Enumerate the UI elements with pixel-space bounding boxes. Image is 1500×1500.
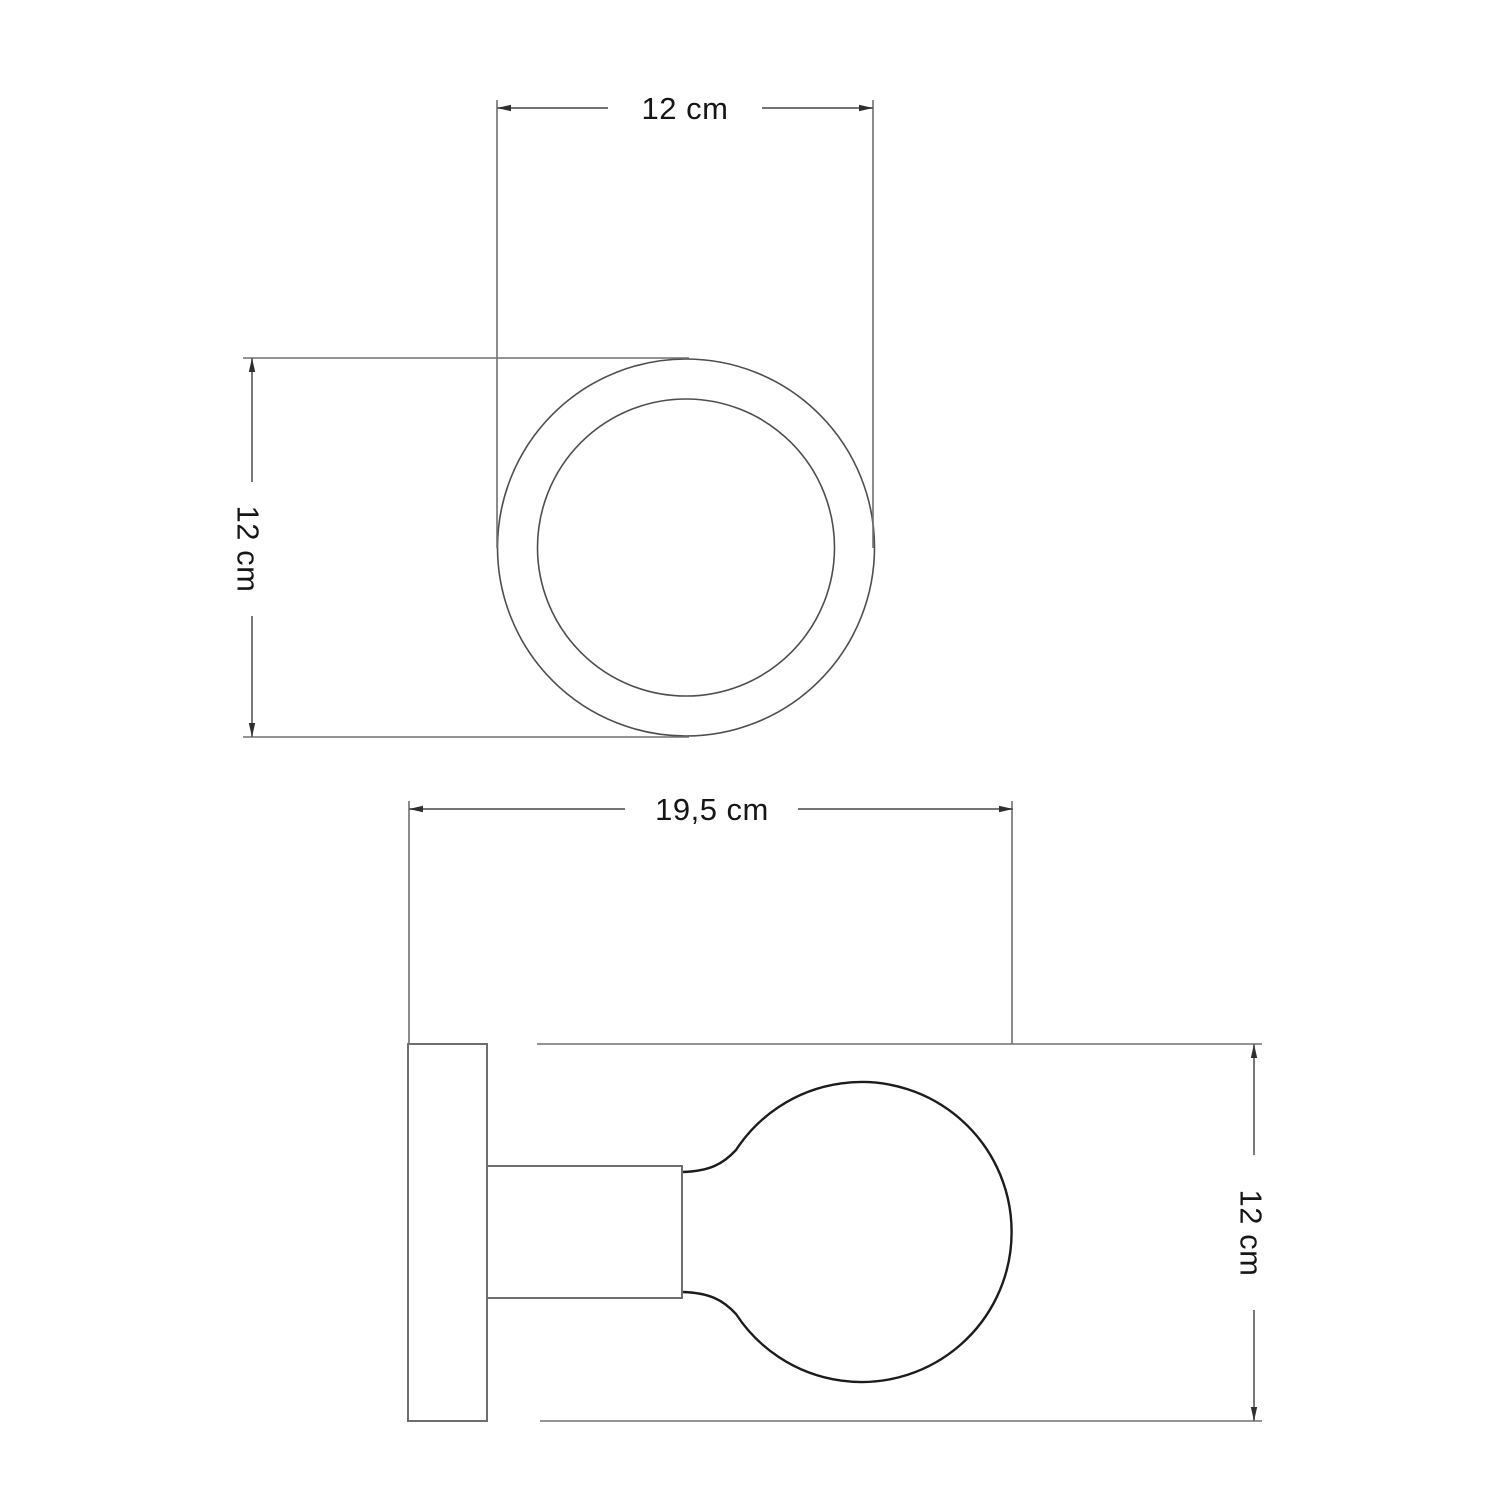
top-view-outer-circle: [498, 359, 875, 736]
light-bulb: [683, 1082, 1012, 1382]
arrowhead-right: [859, 105, 873, 111]
side-view: 19,5 cm 12 cm: [408, 792, 1269, 1421]
arrowhead-down: [1251, 1407, 1257, 1421]
dimension-diagram: 12 cm 12 cm 19,5: [0, 0, 1500, 1500]
top-view: 12 cm 12 cm: [231, 91, 875, 737]
side-view-width-dimension: 19,5 cm: [409, 792, 1013, 1044]
top-view-inner-circle: [538, 399, 835, 696]
arrowhead-right: [999, 806, 1013, 812]
top-view-width-label: 12 cm: [642, 91, 729, 126]
arrowhead-up: [249, 358, 255, 372]
diagram-svg: 12 cm 12 cm 19,5: [0, 0, 1500, 1500]
side-view-width-label: 19,5 cm: [655, 792, 769, 827]
arrowhead-left: [497, 105, 511, 111]
lamp-socket: [487, 1166, 682, 1298]
wall-plate: [408, 1044, 487, 1421]
top-view-height-label: 12 cm: [231, 506, 266, 593]
side-view-height-label: 12 cm: [1234, 1190, 1269, 1277]
arrowhead-left: [409, 806, 423, 812]
arrowhead-down: [249, 723, 255, 737]
arrowhead-up: [1251, 1044, 1257, 1058]
